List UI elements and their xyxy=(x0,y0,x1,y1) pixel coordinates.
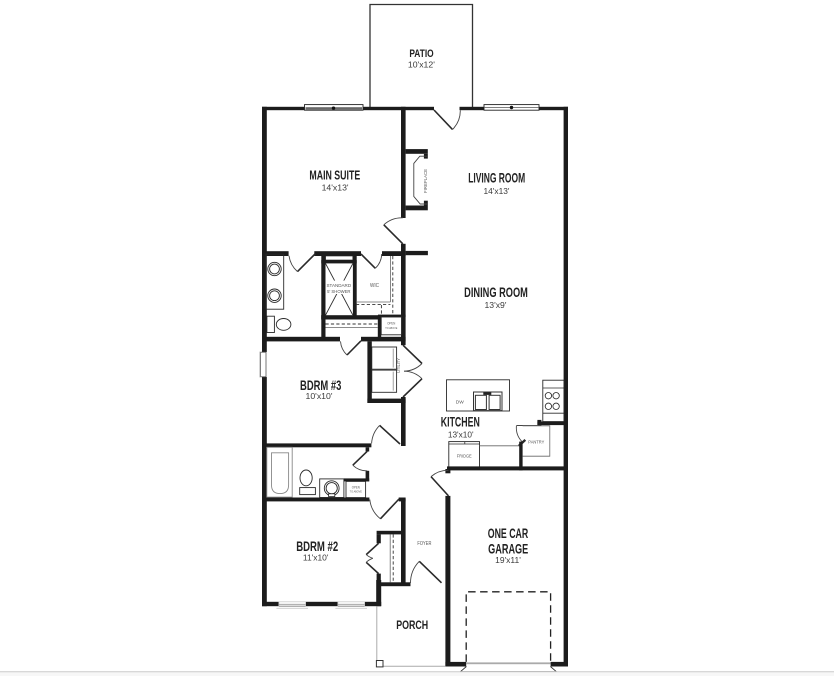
svg-text:DINING ROOM: DINING ROOM xyxy=(464,284,528,300)
svg-text:FIREPLACE: FIREPLACE xyxy=(423,169,428,193)
svg-text:PORCH: PORCH xyxy=(396,619,428,632)
svg-text:PANTRY: PANTRY xyxy=(528,439,545,445)
svg-text:LIVING ROOM: LIVING ROOM xyxy=(468,171,525,186)
svg-text:14'x13': 14'x13' xyxy=(322,183,349,193)
svg-text:11'x10': 11'x10' xyxy=(303,552,329,562)
svg-text:MAIN SUITE: MAIN SUITE xyxy=(309,168,360,183)
svg-text:ONE CAR: ONE CAR xyxy=(488,525,529,541)
svg-text:13'x9': 13'x9' xyxy=(485,300,507,310)
svg-text:10'x10': 10'x10' xyxy=(306,391,333,401)
svg-text:TO ABOVE: TO ABOVE xyxy=(350,490,362,494)
svg-text:FOYER: FOYER xyxy=(417,541,431,547)
svg-text:5' SHOWER: 5' SHOWER xyxy=(327,289,351,295)
svg-text:TO ABOVE: TO ABOVE xyxy=(385,326,397,330)
svg-text:PATIO: PATIO xyxy=(409,48,434,60)
svg-text:FRIDGE: FRIDGE xyxy=(457,453,472,459)
svg-text:WIC: WIC xyxy=(370,283,379,289)
svg-text:19'x11': 19'x11' xyxy=(495,555,521,565)
svg-text:14'x13': 14'x13' xyxy=(484,186,510,196)
svg-text:KITCHEN: KITCHEN xyxy=(441,414,480,430)
svg-text:UTILITY: UTILITY xyxy=(396,358,401,373)
svg-text:DW: DW xyxy=(456,400,464,406)
svg-text:10'x12': 10'x12' xyxy=(408,60,435,70)
svg-text:13'x10': 13'x10' xyxy=(448,430,474,440)
svg-text:GARAGE: GARAGE xyxy=(488,540,528,556)
svg-text:STANDARD: STANDARD xyxy=(327,283,352,289)
